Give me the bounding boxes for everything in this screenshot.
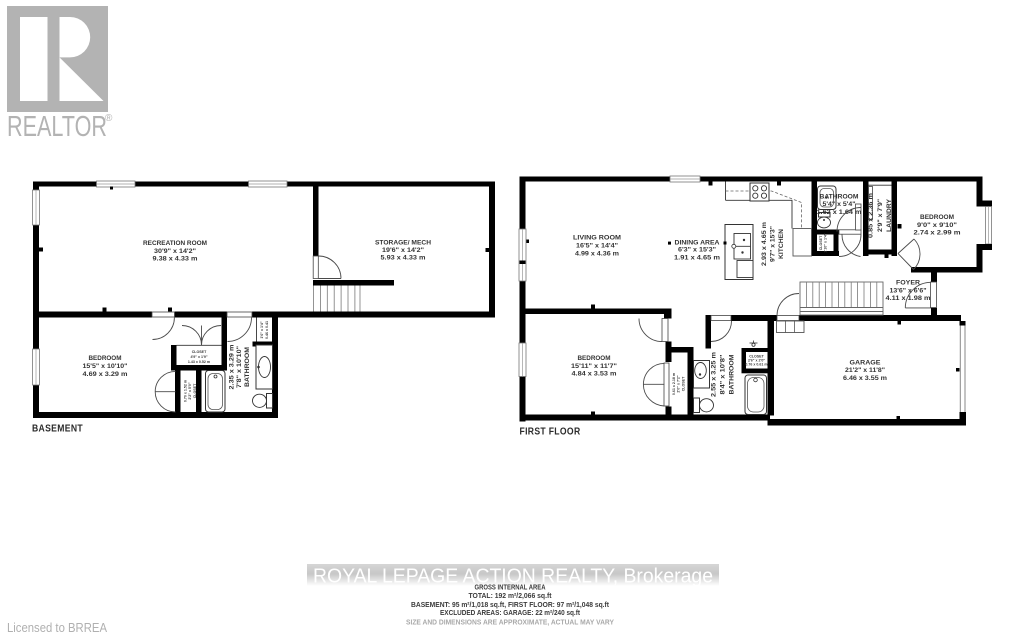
- svg-text:1.43 x 0.52 m: 1.43 x 0.52 m: [188, 360, 210, 364]
- svg-text:FOYER: FOYER: [896, 280, 920, 287]
- svg-text:0.46 x 0.41: 0.46 x 0.41: [265, 321, 269, 339]
- svg-text:FIRST FLOOR: FIRST FLOOR: [520, 426, 581, 438]
- svg-text:TOTAL: 192 m²/2,066 sq.ft: TOTAL: 192 m²/2,066 sq.ft: [469, 591, 553, 600]
- svg-text:13'6" x 6'6": 13'6" x 6'6": [890, 287, 927, 294]
- svg-text:9'7" x 15'3": 9'7" x 15'3": [770, 226, 777, 262]
- svg-text:6.46 x 3.55 m: 6.46 x 3.55 m: [843, 375, 887, 382]
- svg-text:9.38 x 4.33 m: 9.38 x 4.33 m: [153, 256, 198, 263]
- svg-text:4.11 x 1.98 m: 4.11 x 1.98 m: [886, 295, 931, 302]
- svg-text:BATHROOM: BATHROOM: [244, 347, 251, 387]
- svg-text:4.99 x 4.36 m: 4.99 x 4.36 m: [575, 251, 619, 258]
- svg-text:Licensed to BRREA: Licensed to BRREA: [7, 621, 108, 635]
- svg-text:6'3" x 15'3": 6'3" x 15'3": [678, 247, 716, 254]
- svg-text:EXCLUDED AREAS: GARAGE: 22 m²/: EXCLUDED AREAS: GARAGE: 22 m²/240 sq.ft: [440, 608, 581, 617]
- svg-text:KITCHEN: KITCHEN: [778, 229, 785, 259]
- svg-text:BEDROOM: BEDROOM: [89, 355, 122, 362]
- svg-text:5.93 x 4.33 m: 5.93 x 4.33 m: [381, 255, 426, 262]
- svg-text:1.62 x 1.64 m: 1.62 x 1.64 m: [817, 209, 862, 216]
- svg-text:2'2" x 5'0": 2'2" x 5'0": [188, 382, 192, 399]
- svg-text:BATHROOM: BATHROOM: [820, 194, 859, 201]
- svg-text:RECREATION ROOM: RECREATION ROOM: [143, 240, 207, 247]
- svg-text:GARAGE: GARAGE: [850, 359, 882, 366]
- svg-text:CLOSET: CLOSET: [819, 235, 823, 250]
- svg-text:BEDROOM: BEDROOM: [920, 214, 954, 221]
- svg-text:15'11" x 11'7": 15'11" x 11'7": [571, 363, 617, 370]
- svg-text:0.70 x 1.52 m: 0.70 x 1.52 m: [184, 380, 188, 402]
- svg-text:CLOSET: CLOSET: [193, 383, 197, 398]
- svg-text:2.93 x 4.65 m: 2.93 x 4.65 m: [761, 222, 768, 266]
- svg-text:BATHROOM: BATHROOM: [729, 354, 736, 394]
- svg-text:BEDROOM: BEDROOM: [578, 355, 611, 362]
- svg-text:7'8" x 10'10": 7'8" x 10'10": [236, 346, 243, 388]
- svg-text:4.69 x 3.29 m: 4.69 x 3.29 m: [83, 371, 128, 378]
- svg-text:16'5" x 14'4": 16'5" x 14'4": [576, 243, 618, 250]
- svg-text:8'4" x 10'8": 8'4" x 10'8": [720, 354, 727, 394]
- svg-text:19'6" x 14'2": 19'6" x 14'2": [382, 247, 424, 254]
- svg-text:SIZE AND DIMENSIONS ARE APPROX: SIZE AND DIMENSIONS ARE APPROXIMATE, ACT…: [406, 618, 614, 627]
- svg-text:CLOSET: CLOSET: [192, 350, 207, 354]
- svg-text:4.84 x 3.53 m: 4.84 x 3.53 m: [572, 371, 617, 378]
- svg-text:0.85 x 2.36 m: 0.85 x 2.36 m: [868, 193, 875, 238]
- svg-text:BASEMENT: BASEMENT: [32, 423, 83, 435]
- svg-text:2.55 x 3.25 m: 2.55 x 3.25 m: [711, 352, 718, 397]
- svg-text:2'0" x 7'2": 2'0" x 7'2": [677, 375, 681, 392]
- svg-text:2.35 x 3.29 m: 2.35 x 3.29 m: [229, 344, 236, 389]
- svg-text:21'2" x 11'8": 21'2" x 11'8": [845, 367, 885, 374]
- svg-text:REALTOR: REALTOR: [7, 111, 107, 143]
- svg-text:STORAGE/ MECH: STORAGE/ MECH: [375, 240, 431, 247]
- svg-text:2.74 x 2.99 m: 2.74 x 2.99 m: [914, 230, 961, 237]
- svg-text:0.61 x 2.18 m: 0.61 x 2.18 m: [672, 373, 676, 395]
- svg-text:5'4" x 5'4": 5'4" x 5'4": [823, 201, 856, 208]
- svg-text:1.91 x 4.65 m: 1.91 x 4.65 m: [674, 255, 720, 262]
- svg-text:15'5" x 10'10": 15'5" x 10'10": [83, 363, 128, 370]
- svg-text:9'0" x 9'10": 9'0" x 9'10": [917, 222, 957, 229]
- svg-text:LIVING ROOM: LIVING ROOM: [573, 235, 621, 242]
- svg-text:CLOSET: CLOSET: [682, 376, 686, 391]
- svg-text:®: ®: [105, 113, 113, 124]
- svg-text:1'10" x 1'4": 1'10" x 1'4": [824, 233, 828, 252]
- svg-text:LAUNDRY: LAUNDRY: [886, 198, 893, 232]
- svg-text:4'9" x 1'9": 4'9" x 1'9": [190, 355, 207, 359]
- svg-text:1'6" x 1'4": 1'6" x 1'4": [260, 321, 264, 338]
- svg-text:2'9" x 7'9": 2'9" x 7'9": [877, 199, 884, 232]
- svg-text:0.76 x 0.61 m: 0.76 x 0.61 m: [745, 363, 767, 367]
- svg-text:30'9" x 14'2": 30'9" x 14'2": [154, 248, 196, 255]
